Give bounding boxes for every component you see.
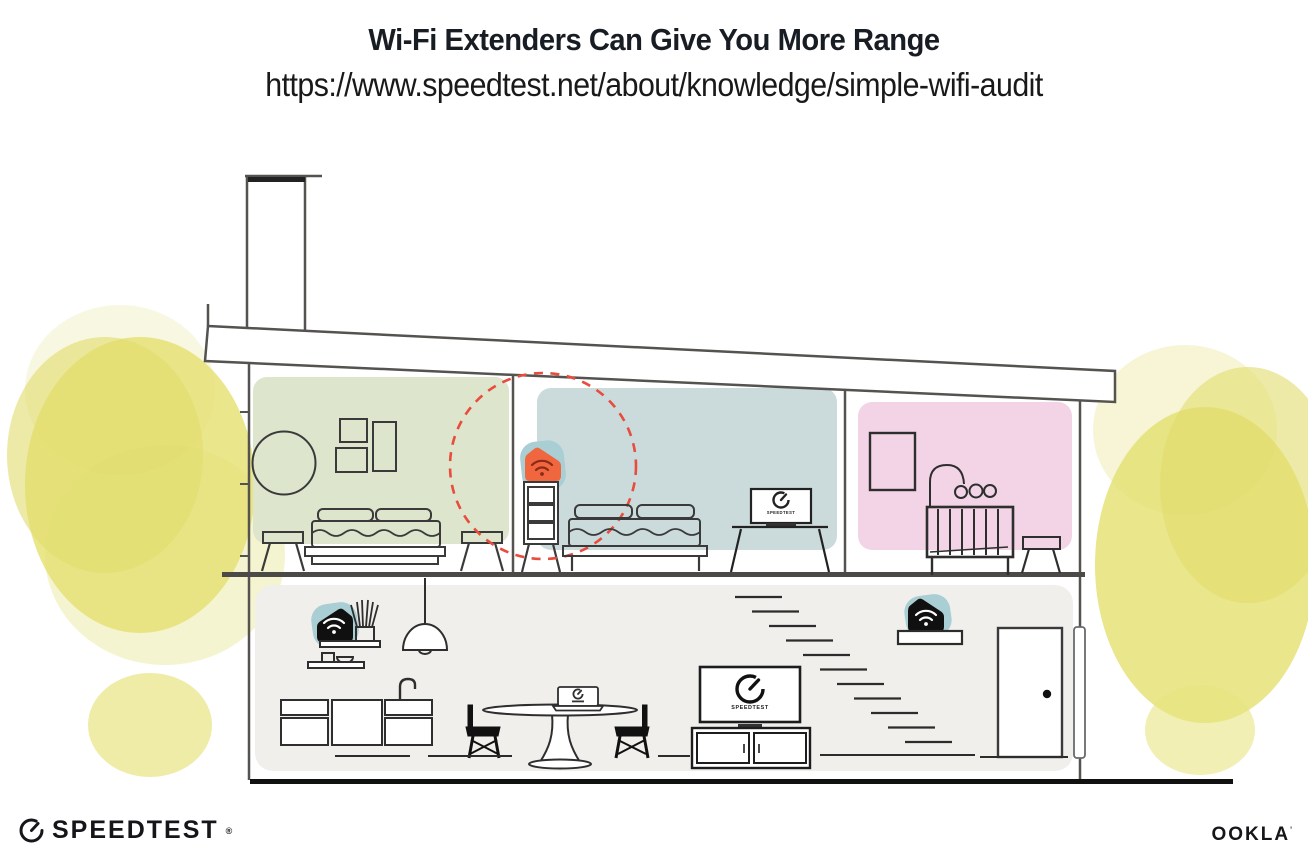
- tv-base: [738, 724, 762, 727]
- kitchen-drawer: [281, 700, 328, 715]
- foliage-right: [1093, 345, 1308, 775]
- kitchen-cabinet: [385, 718, 432, 745]
- tv-screen-label: SPEEDTEST: [767, 510, 796, 515]
- registered-mark: ®: [226, 826, 233, 836]
- downspout: [1074, 627, 1085, 758]
- media-console: [692, 728, 810, 768]
- nursery-pink-wall: [858, 402, 1072, 550]
- shelf-upper: [320, 641, 380, 647]
- page-title: Wi-Fi Extenders Can Give You More Range: [39, 22, 1269, 58]
- entry-shelf: [898, 631, 962, 644]
- bedroom-green-wall: [253, 377, 509, 544]
- foliage-blob: [7, 337, 203, 573]
- ookla-wordmark: OOKLA: [1211, 824, 1290, 845]
- shelf-lower: [308, 662, 364, 668]
- kitchen-drawer: [385, 700, 432, 715]
- laptop: [553, 687, 603, 711]
- foliage-blob-small: [88, 673, 212, 777]
- ookla-logo: OOKLA': [1211, 824, 1292, 846]
- header: Wi-Fi Extenders Can Give You More Range …: [0, 22, 1308, 104]
- living-room-tv: SPEEDTEST: [692, 667, 810, 768]
- speedtest-logo: SPEEDTEST®: [18, 816, 232, 845]
- chimney-cap: [248, 177, 305, 182]
- infographic-page: Wi-Fi Extenders Can Give You More Range …: [0, 0, 1308, 861]
- kitchen-cabinet: [332, 700, 382, 745]
- tv-screen-label: SPEEDTEST: [731, 705, 769, 711]
- house-cross-section-illustration: SPEEDTEST: [0, 0, 1308, 861]
- ground-line: [250, 779, 1233, 784]
- speedtest-wordmark: SPEEDTEST: [52, 816, 219, 845]
- door-knob: [1043, 690, 1051, 698]
- trademark-tick: ': [1290, 826, 1292, 837]
- chimney: [245, 176, 322, 332]
- foliage-left: [7, 305, 285, 777]
- foliage-blob-small: [1145, 685, 1255, 775]
- kitchen-cabinet: [281, 718, 328, 745]
- second-floor-slab: [222, 572, 1085, 577]
- source-url: https://www.speedtest.net/about/knowledg…: [52, 66, 1255, 104]
- gauge-icon: [18, 817, 45, 844]
